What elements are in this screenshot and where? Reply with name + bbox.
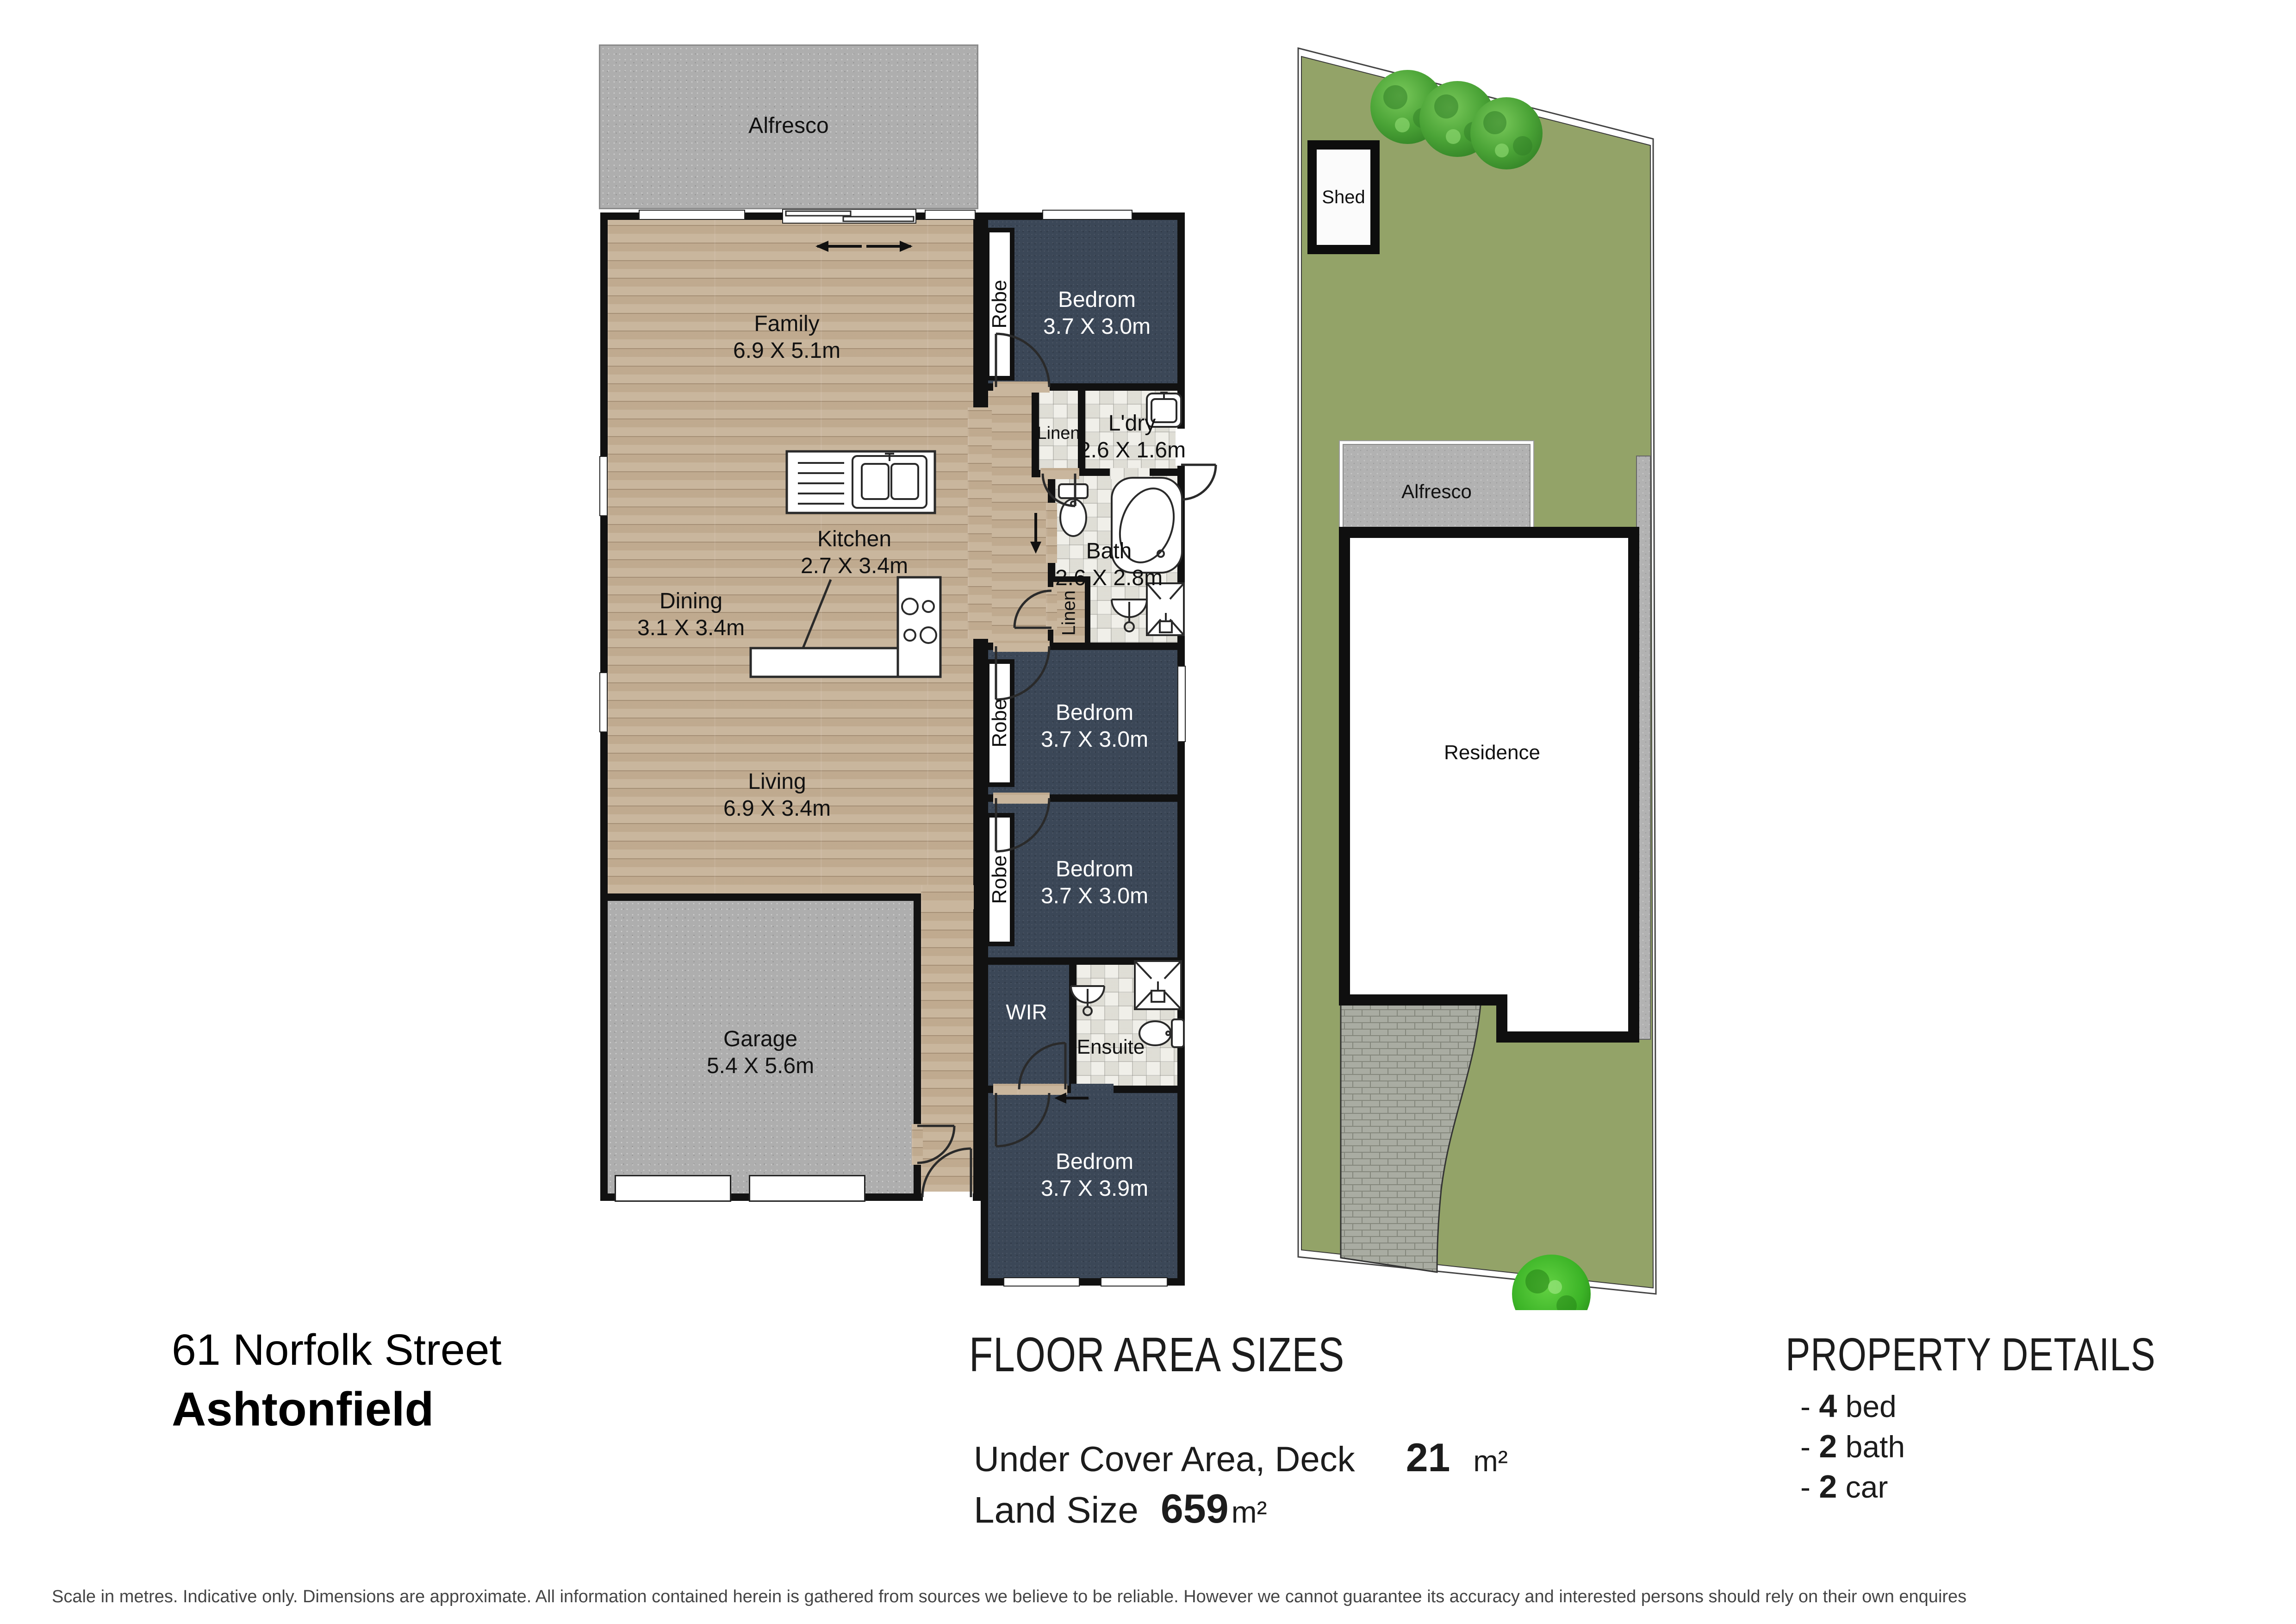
kitchen-label: Kitchen2.7 X 3.4m	[801, 526, 908, 580]
dining-label: Dining3.1 X 3.4m	[637, 588, 745, 642]
bedroom-mid1-label: Bedrom3.7 X 3.0m	[1041, 700, 1148, 753]
site-plan	[1291, 37, 1666, 1310]
fixtures-overlay	[0, 0, 2296, 1624]
family-label: Family6.9 X 5.1m	[733, 311, 840, 364]
site-alfresco-label: Alfresco	[1401, 478, 1472, 505]
shed-label: Shed	[1322, 187, 1365, 207]
robe2-label: Robe	[988, 699, 1011, 747]
living-label: Living6.9 X 3.4m	[723, 768, 831, 822]
ensuite-sink-icon	[1071, 986, 1104, 1015]
laundry-label: L'dry2.6 X 1.6m	[1078, 410, 1186, 464]
bedroom-rear-label: Bedrom3.7 X 3.9m	[1041, 1149, 1148, 1202]
robe3-label: Robe	[988, 855, 1011, 904]
wir-label: WIR	[1006, 999, 1047, 1025]
alfresco-label: Alfresco	[748, 112, 828, 139]
robe1-label: Robe	[988, 280, 1011, 328]
linen2-label: Linen	[1059, 590, 1080, 636]
bath-sink-icon	[1112, 600, 1147, 631]
kitchen-bench-icon	[751, 577, 940, 677]
ensuite-label: Ensuite	[1077, 1034, 1145, 1061]
toilet-icon	[1059, 484, 1088, 536]
residence-outline	[1344, 532, 1634, 1037]
ensuite-shower-icon	[1135, 961, 1181, 1009]
garage-label: Garage5.4 X 5.6m	[707, 1026, 814, 1080]
sliding-door-icon	[786, 211, 914, 252]
kitchen-island-icon	[787, 451, 935, 513]
bedroom-mid2-label: Bedrom3.7 X 3.0m	[1041, 856, 1148, 910]
floorplan-page: Alfresco Family6.9 X 5.1m Kitchen2.7 X 3…	[0, 0, 2296, 1624]
linen1-label: Linen	[1037, 423, 1080, 443]
ensuite-toilet-icon	[1139, 1019, 1184, 1047]
bath-label: Bath2.6 X 2.8m	[1055, 538, 1163, 592]
residence-label: Residence	[1444, 739, 1540, 766]
bedroom-top-label: Bedrom3.7 X 3.0m	[1043, 287, 1151, 340]
